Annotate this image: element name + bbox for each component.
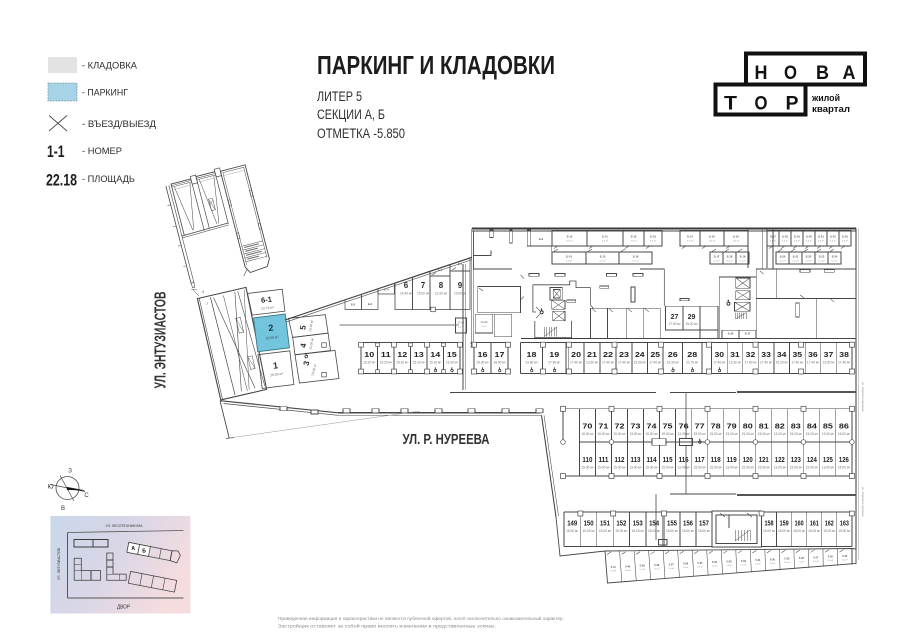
svg-text:71: 71: [598, 422, 608, 431]
svg-text:ул. Родиона Нуреева: ул. Родиона Нуреева: [861, 382, 865, 412]
svg-text:15.00 м²: 15.00 м²: [710, 466, 722, 470]
svg-text:161: 161: [810, 519, 819, 528]
svg-text:13.30 м²: 13.30 м²: [822, 361, 834, 365]
svg-text:15.00 м²: 15.00 м²: [742, 432, 754, 436]
svg-text:159: 159: [780, 519, 789, 528]
svg-text:Б-24: Б-24: [832, 255, 838, 259]
svg-text:5-37: 5-37: [669, 563, 675, 566]
svg-text:Б-17: Б-17: [714, 255, 720, 259]
svg-text:15.00 м²: 15.00 м²: [581, 432, 593, 436]
svg-text:34: 34: [777, 350, 788, 359]
svg-text:5.2 м²: 5.2 м²: [832, 260, 838, 263]
svg-text:О: О: [755, 94, 768, 115]
svg-text:СЕКЦИИ А, Б: СЕКЦИИ А, Б: [317, 107, 385, 122]
svg-text:83: 83: [791, 422, 801, 431]
svg-text:154: 154: [649, 519, 660, 528]
svg-text:112: 112: [614, 455, 624, 464]
svg-text:23.80 м²: 23.80 м²: [525, 361, 537, 365]
svg-text:15.00 м²: 15.00 м²: [645, 466, 657, 470]
svg-text:122: 122: [775, 455, 785, 464]
svg-text:Б-22: Б-22: [806, 255, 812, 259]
svg-text:17.40 м²: 17.40 м²: [618, 361, 630, 365]
svg-text:5-34: 5-34: [712, 561, 718, 564]
svg-text:13.30 м²: 13.30 м²: [446, 361, 458, 365]
svg-text:13.30 м²: 13.30 м²: [729, 361, 741, 365]
svg-text:15.00 м²: 15.00 м²: [599, 529, 611, 533]
svg-text:13.00 м²: 13.00 м²: [822, 432, 834, 436]
svg-text:152: 152: [616, 519, 626, 528]
svg-text:17.40 м²: 17.40 м²: [791, 361, 803, 365]
svg-text:Б-12: Б-12: [631, 235, 637, 239]
svg-text:5.0 м²: 5.0 м²: [683, 566, 689, 569]
svg-text:5.0 м²: 5.0 м²: [799, 560, 805, 563]
svg-text:5-39: 5-39: [640, 565, 646, 568]
svg-text:5.0 м²: 5.0 м²: [712, 565, 718, 568]
svg-text:Ю: Ю: [47, 485, 53, 491]
svg-text:Б-13: Б-13: [650, 235, 656, 239]
svg-text:15.00 м²: 15.00 м²: [662, 432, 674, 436]
svg-text:21.00 м²: 21.00 м²: [435, 292, 447, 296]
svg-text:13.00 м²: 13.00 м²: [774, 432, 786, 436]
svg-text:16: 16: [478, 350, 488, 359]
svg-text:15.00 м²: 15.00 м²: [597, 432, 609, 436]
svg-text:86: 86: [839, 422, 849, 431]
svg-text:5-40: 5-40: [625, 565, 631, 568]
svg-text:150: 150: [584, 519, 594, 528]
svg-text:5.0 м²: 5.0 м²: [770, 562, 776, 565]
svg-text:15.00 м²: 15.00 м²: [806, 432, 818, 436]
svg-text:18: 18: [527, 350, 537, 359]
svg-text:Б-16: Б-16: [733, 235, 739, 239]
svg-text:ПАРКИНГ И КЛАДОВКИ: ПАРКИНГ И КЛАДОВКИ: [317, 50, 555, 80]
svg-text:5.0 м²: 5.0 м²: [654, 568, 660, 571]
svg-text:Б-11: Б-11: [602, 235, 608, 239]
svg-text:15.20 м²: 15.20 м²: [380, 361, 392, 365]
svg-text:27.90 м²: 27.90 м²: [548, 361, 560, 365]
svg-text:15.00 м²: 15.00 м²: [808, 529, 820, 533]
svg-text:Б-22: Б-22: [830, 235, 836, 239]
svg-text:5.2 м²: 5.2 м²: [633, 260, 639, 263]
svg-text:ул. Родиона Нуреева: ул. Родиона Нуреева: [861, 487, 865, 517]
svg-text:5.0 м²: 5.0 м²: [639, 568, 645, 571]
svg-text:Р: Р: [786, 94, 799, 115]
svg-text:15.20 м²: 15.20 м²: [413, 361, 425, 365]
svg-text:13.00 м²: 13.00 м²: [678, 466, 690, 470]
svg-text:5.0 м²: 5.0 м²: [755, 563, 761, 566]
svg-text:Застройщик оставляет за собой: Застройщик оставляет за собой право внос…: [278, 624, 496, 629]
svg-text:72: 72: [614, 422, 624, 431]
svg-text:15.30 м²: 15.30 м²: [776, 361, 788, 365]
svg-text:153: 153: [633, 519, 643, 528]
svg-text:15.00 м²: 15.00 м²: [682, 529, 694, 533]
svg-text:17.40 м²: 17.40 м²: [744, 361, 756, 365]
svg-text:15.30 м²: 15.30 м²: [634, 361, 646, 365]
svg-text:5.2 м²: 5.2 м²: [819, 260, 825, 263]
svg-text:5.2 м²: 5.2 м²: [780, 260, 786, 263]
svg-text:УЛ. ЛЕСОТЕХНИКУМА: УЛ. ЛЕСОТЕХНИКУМА: [106, 523, 143, 528]
svg-text:Б-20: Б-20: [780, 255, 786, 259]
svg-text:28: 28: [687, 350, 697, 359]
svg-text:15.00 м²: 15.00 м²: [613, 432, 625, 436]
svg-text:- НОМЕР: - НОМЕР: [82, 146, 122, 156]
svg-text:5-36: 5-36: [683, 563, 689, 566]
svg-text:5.0 м²: 5.0 м²: [687, 240, 693, 243]
svg-text:15.00 м²: 15.00 м²: [666, 529, 678, 533]
svg-text:В: В: [816, 63, 829, 84]
svg-text:121: 121: [759, 455, 769, 464]
svg-text:151: 151: [600, 519, 610, 528]
svg-text:5.0 м²: 5.0 м²: [842, 558, 848, 561]
svg-text:5-32: 5-32: [741, 560, 747, 563]
svg-text:30: 30: [715, 350, 725, 359]
svg-text:5.2 м²: 5.2 м²: [806, 260, 812, 263]
svg-text:15.20 м²: 15.20 м²: [685, 322, 697, 326]
svg-text:Б-20: Б-20: [806, 235, 812, 239]
svg-text:15.00 м²: 15.00 м²: [597, 466, 609, 470]
svg-text:78: 78: [711, 422, 721, 431]
svg-text:5.0 м²: 5.0 м²: [784, 561, 790, 564]
svg-text:25: 25: [651, 350, 661, 359]
svg-text:15.00 м²: 15.00 м²: [694, 466, 706, 470]
svg-text:13: 13: [414, 350, 424, 359]
svg-text:74: 74: [647, 422, 658, 431]
svg-text:36: 36: [808, 350, 818, 359]
svg-text:15.00 м²: 15.00 м²: [710, 432, 722, 436]
svg-text:17.40 м²: 17.40 м²: [713, 361, 725, 365]
svg-text:Н: Н: [755, 63, 768, 84]
svg-text:117: 117: [695, 455, 705, 464]
svg-text:- ПАРКИНГ: - ПАРКИНГ: [82, 88, 128, 98]
svg-text:15.00 м²: 15.00 м²: [581, 466, 593, 470]
svg-text:80: 80: [743, 422, 753, 431]
svg-text:Б-18: Б-18: [727, 255, 733, 259]
svg-text:15.00 м²: 15.00 м²: [417, 292, 429, 296]
svg-text:114: 114: [647, 455, 658, 464]
svg-text:5.0 м²: 5.0 м²: [668, 567, 674, 570]
svg-text:115: 115: [663, 455, 673, 464]
svg-text:Б-21: Б-21: [793, 255, 799, 259]
svg-text:5.0 м²: 5.0 м²: [806, 240, 812, 243]
svg-text:13.00 м²: 13.00 м²: [629, 466, 641, 470]
svg-text:5-27: 5-27: [813, 556, 819, 559]
svg-text:5.0 м²: 5.0 м²: [782, 240, 788, 243]
svg-text:15.00 м²: 15.00 м²: [838, 432, 850, 436]
svg-text:5.2 м²: 5.2 м²: [566, 260, 572, 263]
svg-text:5-30: 5-30: [770, 558, 776, 561]
svg-text:15.00 м²: 15.00 м²: [793, 529, 805, 533]
svg-text:31: 31: [730, 350, 740, 359]
svg-text:5.2 м²: 5.2 м²: [793, 260, 799, 263]
svg-text:15.00 м²: 15.00 м²: [838, 529, 850, 533]
svg-text:5.0 м²: 5.0 м²: [741, 563, 747, 566]
svg-text:15.00 м²: 15.00 м²: [758, 432, 770, 436]
svg-text:5.2 м²: 5.2 м²: [600, 260, 606, 263]
svg-text:1-1: 1-1: [47, 142, 65, 161]
svg-text:Б-9: Б-9: [539, 237, 544, 241]
svg-text:15.00 м²: 15.00 м²: [613, 466, 625, 470]
svg-text:ДВОР: ДВОР: [117, 605, 131, 611]
svg-text:14.40 м²: 14.40 м²: [400, 292, 412, 296]
svg-text:13.00 м²: 13.00 м²: [822, 466, 834, 470]
svg-text:113: 113: [631, 455, 641, 464]
svg-text:15.00 м²: 15.00 м²: [662, 466, 674, 470]
svg-text:15.00 м²: 15.00 м²: [583, 529, 595, 533]
svg-text:11: 11: [381, 350, 391, 359]
svg-text:19.00 м²: 19.00 м²: [454, 292, 466, 296]
svg-text:А: А: [843, 63, 856, 84]
svg-text:С: С: [84, 493, 89, 499]
svg-text:5.0 м²: 5.0 м²: [827, 559, 833, 562]
svg-text:27: 27: [671, 314, 679, 321]
svg-text:5-35: 5-35: [698, 562, 704, 565]
svg-text:5-28: 5-28: [799, 557, 805, 560]
svg-text:Б-14: Б-14: [687, 235, 693, 239]
svg-text:Б-37: Б-37: [745, 332, 751, 336]
svg-text:19: 19: [549, 350, 559, 359]
svg-text:5.2 м²: 5.2 м²: [740, 260, 746, 263]
svg-text:15.00 м²: 15.00 м²: [838, 466, 850, 470]
svg-text:157: 157: [699, 519, 709, 528]
svg-text:84: 84: [807, 422, 818, 431]
svg-text:6.1 м²: 6.1 м²: [458, 326, 464, 329]
svg-text:33: 33: [761, 350, 771, 359]
svg-text:160: 160: [795, 519, 804, 528]
svg-text:5-26: 5-26: [828, 556, 834, 559]
svg-text:- ПЛОЩАДЬ: - ПЛОЩАДЬ: [82, 174, 135, 184]
svg-text:81: 81: [759, 422, 769, 431]
svg-text:жилой: жилой: [811, 93, 840, 104]
svg-text:ОТМЕТКА -5.850: ОТМЕТКА -5.850: [317, 126, 405, 141]
svg-text:73: 73: [631, 422, 641, 431]
svg-text:ЛИТЕР 5: ЛИТЕР 5: [317, 89, 362, 104]
svg-text:155: 155: [667, 519, 677, 528]
svg-text:82: 82: [775, 422, 785, 431]
svg-text:14: 14: [430, 350, 441, 359]
svg-text:126: 126: [839, 455, 849, 464]
svg-text:Б-17: Б-17: [770, 235, 776, 239]
svg-text:15.00 м²: 15.00 м²: [648, 529, 660, 533]
svg-text:УЛ. ЭНТУЗИАСТОВ: УЛ. ЭНТУЗИАСТОВ: [56, 548, 61, 580]
svg-text:5-31: 5-31: [755, 559, 761, 562]
svg-text:110: 110: [582, 455, 592, 464]
svg-text:18.90 м²: 18.90 м²: [493, 361, 505, 365]
svg-text:5-29: 5-29: [784, 558, 790, 561]
svg-text:6-1: 6-1: [260, 295, 272, 305]
svg-text:75: 75: [663, 422, 673, 431]
svg-text:Б-16: Б-16: [633, 255, 639, 259]
svg-text:- ВЪЕЗД/ВЫЕЗД: - ВЪЕЗД/ВЫЕЗД: [82, 119, 156, 129]
svg-text:5.0 м²: 5.0 м²: [650, 240, 656, 243]
svg-text:УЛ. ЭНТУЗИАСТОВ: УЛ. ЭНТУЗИАСТОВ: [153, 292, 170, 389]
svg-text:21.70 м²: 21.70 м²: [686, 361, 698, 365]
svg-text:17.40 м²: 17.40 м²: [649, 361, 661, 365]
svg-text:21: 21: [587, 350, 597, 359]
svg-text:17: 17: [495, 350, 505, 359]
svg-text:В: В: [61, 506, 65, 512]
svg-text:А: А: [131, 546, 135, 552]
svg-text:5.0 м²: 5.0 м²: [610, 570, 616, 573]
svg-text:Б-7: Б-7: [458, 262, 463, 266]
svg-text:76: 76: [679, 422, 689, 431]
svg-text:15.20 м²: 15.20 м²: [396, 361, 408, 365]
svg-text:15.00 м²: 15.00 м²: [615, 529, 627, 533]
svg-text:Б-4: Б-4: [384, 288, 389, 292]
svg-text:5.2 м²: 5.2 м²: [727, 260, 733, 263]
svg-text:5.0 м²: 5.0 м²: [830, 240, 836, 243]
svg-text:118: 118: [711, 455, 721, 464]
svg-text:1 м²: 1 м²: [482, 325, 486, 328]
svg-text:5.0 м²: 5.0 м²: [818, 240, 824, 243]
svg-text:9: 9: [458, 281, 463, 290]
svg-text:17.40 м²: 17.40 м²: [602, 361, 614, 365]
svg-text:13.00 м²: 13.00 м²: [726, 432, 738, 436]
svg-text:5.0 м²: 5.0 м²: [794, 240, 800, 243]
svg-text:13.00 м²: 13.00 м²: [774, 466, 786, 470]
svg-text:Б-4: Б-4: [438, 268, 443, 272]
svg-text:17-01: 17-01: [457, 321, 465, 325]
svg-text:Б-19: Б-19: [794, 235, 800, 239]
svg-text:15.00 м²: 15.00 м²: [698, 529, 710, 533]
svg-text:10: 10: [364, 350, 374, 359]
svg-text:29: 29: [688, 314, 696, 321]
svg-text:15.00 м²: 15.00 м²: [790, 466, 802, 470]
svg-text:З: З: [68, 469, 72, 475]
svg-text:Б-10: Б-10: [567, 235, 573, 239]
svg-text:15.00 м²: 15.00 м²: [823, 529, 835, 533]
svg-text:5.0 м²: 5.0 м²: [567, 240, 573, 243]
svg-text:116: 116: [679, 455, 689, 464]
svg-text:5.0 м²: 5.0 м²: [602, 240, 608, 243]
svg-text:5.0 м²: 5.0 м²: [709, 240, 715, 243]
svg-text:35: 35: [793, 350, 803, 359]
svg-text:13.00 м²: 13.00 м²: [726, 466, 738, 470]
svg-text:5.0 м²: 5.0 м²: [625, 569, 631, 572]
svg-text:5-41: 5-41: [611, 566, 617, 569]
svg-text:22: 22: [603, 350, 613, 359]
svg-text:5.0 м²: 5.0 м²: [631, 240, 637, 243]
svg-text:Б-15: Б-15: [709, 235, 715, 239]
svg-text:15.00 м²: 15.00 м²: [645, 432, 657, 436]
svg-text:Б-21: Б-21: [818, 235, 824, 239]
svg-text:15.00 м²: 15.00 м²: [806, 466, 818, 470]
svg-text:24: 24: [635, 350, 646, 359]
svg-text:Б-6: Б-6: [368, 302, 373, 306]
svg-text:13.30 м²: 13.30 м²: [586, 361, 598, 365]
svg-text:5.0 м²: 5.0 м²: [726, 564, 732, 567]
svg-text:163: 163: [840, 519, 849, 528]
svg-text:5-33: 5-33: [726, 561, 732, 564]
svg-text:Б-5: Б-5: [351, 303, 356, 307]
svg-text:124: 124: [807, 455, 818, 464]
svg-text:125: 125: [823, 455, 833, 464]
svg-text:6: 6: [404, 281, 409, 290]
svg-text:19.30 м²: 19.30 м²: [476, 361, 488, 365]
svg-text:Б: Б: [142, 548, 146, 554]
svg-text:23: 23: [619, 350, 629, 359]
svg-text:20: 20: [571, 350, 581, 359]
svg-text:15.00 м²: 15.00 м²: [778, 529, 790, 533]
svg-text:70: 70: [582, 422, 592, 431]
svg-text:12: 12: [397, 350, 407, 359]
svg-text:Приведенная информация и харак: Приведенная информация и характеристики …: [278, 616, 564, 621]
svg-text:22.18: 22.18: [46, 171, 77, 190]
svg-text:15.00 м²: 15.00 м²: [763, 529, 775, 533]
svg-text:О: О: [784, 63, 797, 84]
svg-text:119: 119: [727, 455, 737, 464]
svg-text:14-02: 14-02: [480, 320, 488, 324]
svg-text:5.0 м²: 5.0 м²: [697, 565, 703, 568]
svg-text:5.0 м²: 5.0 м²: [842, 240, 848, 243]
svg-text:37: 37: [824, 350, 834, 359]
svg-text:149: 149: [567, 519, 577, 528]
svg-text:13.00 м²: 13.00 м²: [629, 432, 641, 436]
svg-text:Б-19: Б-19: [740, 255, 746, 259]
svg-text:17.00 м²: 17.00 м²: [668, 322, 680, 326]
svg-text:7: 7: [421, 281, 426, 290]
svg-text:111: 111: [598, 455, 608, 464]
svg-text:156: 156: [683, 519, 693, 528]
svg-text:15.00 м²: 15.00 м²: [694, 432, 706, 436]
svg-text:77: 77: [695, 422, 705, 431]
svg-text:158: 158: [765, 519, 774, 528]
svg-text:15.00 м²: 15.00 м²: [742, 466, 754, 470]
svg-text:5-38: 5-38: [654, 564, 660, 567]
svg-text:162: 162: [825, 519, 834, 528]
svg-text:8: 8: [439, 281, 444, 290]
svg-text:Б-14: Б-14: [566, 255, 572, 259]
svg-text:15: 15: [447, 350, 457, 359]
svg-text:17.40 м²: 17.40 м²: [838, 361, 850, 365]
svg-text:- КЛАДОВКА: - КЛАДОВКА: [82, 61, 137, 71]
svg-text:Т: Т: [724, 94, 737, 115]
svg-text:79: 79: [727, 422, 737, 431]
svg-text:квартал: квартал: [812, 104, 850, 115]
svg-text:17.40 м²: 17.40 м²: [760, 361, 772, 365]
svg-text:Б-23: Б-23: [819, 255, 825, 259]
svg-text:17.40 м²: 17.40 м²: [807, 361, 819, 365]
svg-text:15.20 м²: 15.20 м²: [363, 361, 375, 365]
svg-text:15.00 м²: 15.00 м²: [758, 466, 770, 470]
svg-text:38: 38: [839, 350, 849, 359]
svg-text:15.00 м²: 15.00 м²: [790, 432, 802, 436]
svg-text:15.10 м²: 15.10 м²: [429, 361, 441, 365]
svg-text:5.0 м²: 5.0 м²: [813, 560, 819, 563]
svg-text:32: 32: [746, 350, 756, 359]
svg-text:15.00 м²: 15.00 м²: [566, 529, 578, 533]
svg-text:120: 120: [743, 455, 753, 464]
svg-text:Б-18: Б-18: [782, 235, 788, 239]
svg-text:5-25: 5-25: [842, 555, 848, 558]
svg-text:Б-23: Б-23: [842, 235, 848, 239]
svg-text:123: 123: [791, 455, 801, 464]
svg-text:5.2 м²: 5.2 м²: [714, 260, 720, 263]
svg-text:19.30 м²: 19.30 м²: [667, 361, 679, 365]
svg-text:15.00 м²: 15.00 м²: [632, 529, 644, 533]
svg-text:Б-15: Б-15: [600, 255, 606, 259]
svg-text:26: 26: [668, 350, 678, 359]
svg-text:17.40 м²: 17.40 м²: [570, 361, 582, 365]
svg-text:УЛ. Р. НУРЕЕВА: УЛ. Р. НУРЕЕВА: [403, 432, 490, 448]
svg-text:13.00 м²: 13.00 м²: [678, 432, 690, 436]
svg-text:5.0 м²: 5.0 м²: [733, 240, 739, 243]
svg-text:85: 85: [823, 422, 833, 431]
svg-text:Б-36: Б-36: [728, 332, 734, 336]
